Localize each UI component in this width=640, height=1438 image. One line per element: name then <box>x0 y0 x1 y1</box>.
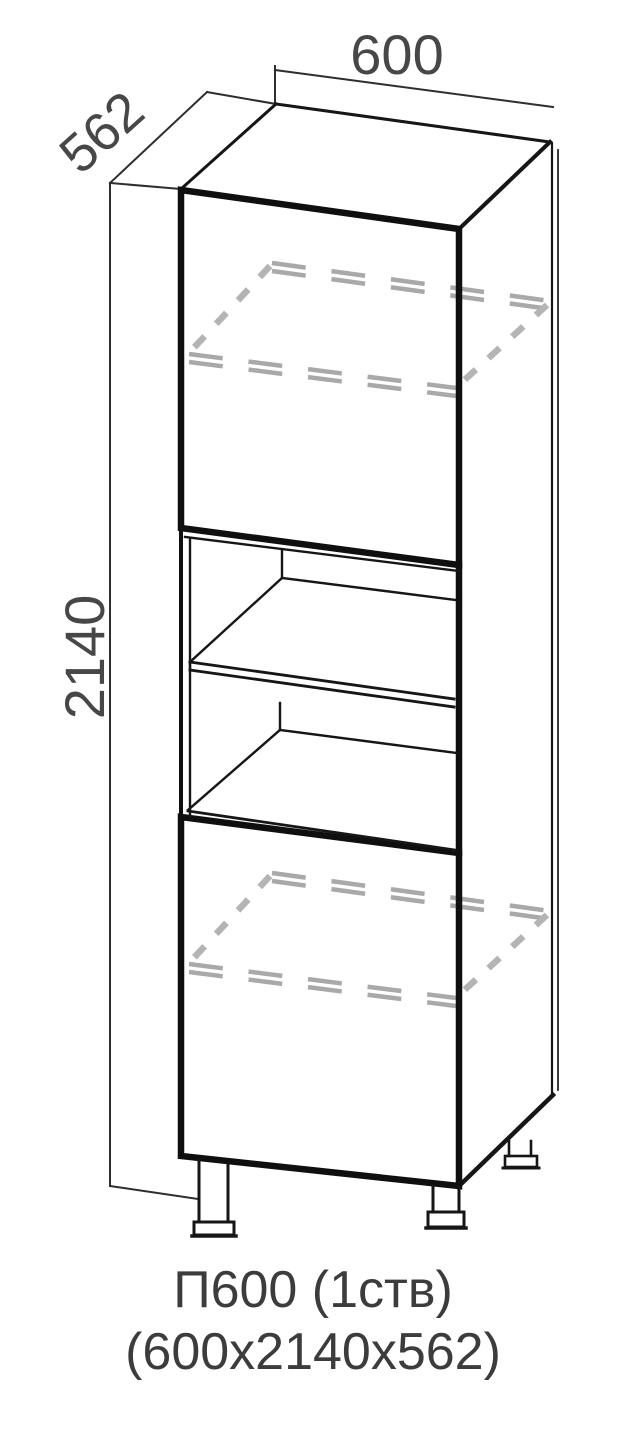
hidden-shelf-bottom-dashed <box>189 873 550 1006</box>
top-back-edge <box>276 104 550 142</box>
niche-floor-back-edge <box>280 730 457 753</box>
dimension-lines <box>110 66 553 1199</box>
bottom-right-depth-edge <box>458 1095 553 1187</box>
front-left-foot <box>192 1160 236 1236</box>
front-right-foot <box>426 1185 466 1228</box>
dimension-labels: 600 562 2140 <box>48 23 443 719</box>
top-left-depth-edge <box>181 104 276 189</box>
product-caption: П600 (1ств) (600х2140х562) <box>125 1261 501 1381</box>
feet <box>192 1139 539 1236</box>
niche-floor-front-edge <box>188 811 455 850</box>
shelf-front-bottom-edge <box>190 670 454 707</box>
bottom-door <box>181 817 459 1186</box>
niche-ceiling-edge <box>185 537 459 571</box>
caption-overall-size: (600х2140х562) <box>125 1323 501 1381</box>
caption-model-name: П600 (1ств) <box>173 1261 453 1319</box>
cabinet-body <box>181 104 558 1187</box>
width-dimension-label: 600 <box>350 23 443 86</box>
top-right-depth-edge <box>459 142 550 229</box>
shelf-front-top-edge <box>190 662 454 699</box>
depth-dimension-label: 562 <box>48 80 155 185</box>
back-right-foot <box>503 1139 539 1168</box>
height-dimension-label: 2140 <box>53 595 116 720</box>
open-niche-interior <box>185 537 459 850</box>
niche-floor-left-edge <box>188 730 280 810</box>
shelf-back-edge <box>282 578 456 600</box>
hidden-shelf-top-dashed <box>189 263 550 396</box>
cabinet-technical-drawing: 600 562 2140 П600 (1ств) (600х2140х562) <box>0 0 640 1438</box>
shelf-left-edge <box>190 578 282 662</box>
diagram-page: 600 562 2140 П600 (1ств) (600х2140х562) <box>0 0 640 1438</box>
